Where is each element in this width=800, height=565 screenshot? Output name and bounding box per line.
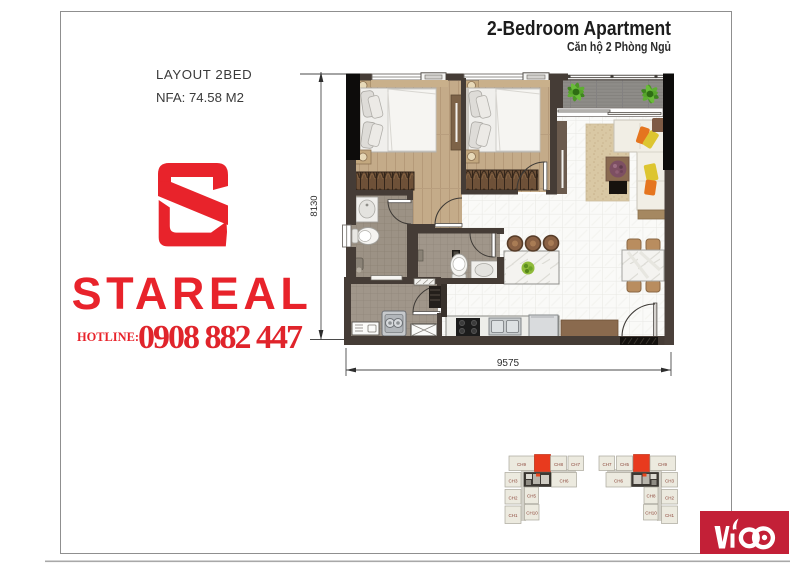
svg-text:2-Bedroom Apartment: 2-Bedroom Apartment (487, 18, 671, 40)
svg-text:CH7: CH7 (602, 462, 611, 467)
svg-text:CH9: CH9 (658, 462, 667, 467)
svg-text:CH1: CH1 (665, 513, 674, 518)
svg-text:STAREAL: STAREAL (72, 268, 313, 319)
svg-text:CH8: CH8 (554, 462, 563, 467)
svg-text:8130: 8130 (309, 195, 320, 216)
svg-text:CH5: CH5 (527, 494, 536, 499)
svg-text:CH6: CH6 (559, 479, 568, 484)
svg-text:CH9: CH9 (517, 462, 526, 467)
svg-text:0908 882 447: 0908 882 447 (138, 319, 303, 356)
svg-text:CH2: CH2 (508, 496, 517, 501)
svg-text:CH10: CH10 (526, 511, 538, 516)
svg-text:CH7: CH7 (571, 462, 580, 467)
svg-text:NFA: 74.58 M2: NFA: 74.58 M2 (156, 90, 244, 105)
svg-text:Căn hộ 2 Phòng Ngủ: Căn hộ 2 Phòng Ngủ (567, 39, 671, 54)
svg-text:CH1: CH1 (508, 513, 517, 518)
svg-text:9575: 9575 (497, 358, 520, 369)
svg-text:CH8: CH8 (646, 494, 655, 499)
svg-text:CH6: CH6 (614, 479, 623, 484)
svg-text:CH3: CH3 (665, 479, 674, 484)
svg-text:HOTLINE:: HOTLINE: (77, 330, 139, 344)
svg-text:CH10: CH10 (645, 511, 657, 516)
svg-text:CH5: CH5 (620, 462, 629, 467)
svg-text:CH2: CH2 (665, 496, 674, 501)
svg-text:CH3: CH3 (508, 479, 517, 484)
svg-text:LAYOUT 2BED: LAYOUT 2BED (156, 67, 252, 82)
